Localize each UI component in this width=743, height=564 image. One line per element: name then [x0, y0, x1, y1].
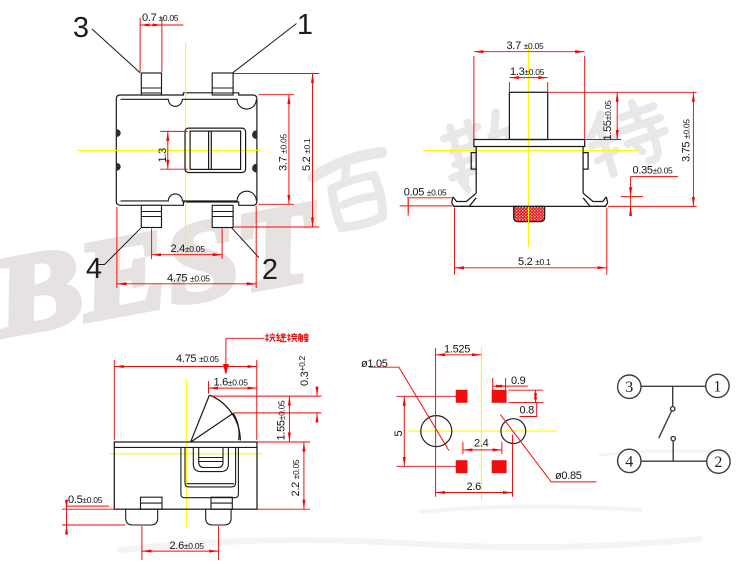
- svg-text:1.55±0.05: 1.55±0.05: [276, 400, 288, 441]
- svg-text:3.7 ±0.05: 3.7 ±0.05: [278, 134, 290, 171]
- svg-text:0.7 ±0.05: 0.7 ±0.05: [142, 12, 179, 24]
- svg-text:1.6±0.05: 1.6±0.05: [214, 377, 249, 389]
- svg-text:0.5±0.05: 0.5±0.05: [68, 494, 103, 506]
- svg-text:2: 2: [714, 454, 722, 471]
- svg-text:1.55±0.05: 1.55±0.05: [602, 100, 614, 141]
- svg-text:5.2 ±0.1: 5.2 ±0.1: [301, 138, 313, 171]
- svg-text:1.525: 1.525: [444, 344, 470, 356]
- svg-text:4: 4: [86, 253, 102, 285]
- svg-text:1.3±0.05: 1.3±0.05: [510, 66, 545, 78]
- svg-text:2.6: 2.6: [467, 481, 482, 493]
- svg-text:4: 4: [625, 453, 633, 470]
- svg-text:5.2 ±0.1: 5.2 ±0.1: [518, 256, 551, 268]
- svg-text:0.05 ±0.05: 0.05 ±0.05: [404, 186, 447, 198]
- svg-text:2.4: 2.4: [474, 438, 489, 450]
- svg-text:4.75 ±0.05: 4.75 ±0.05: [176, 353, 219, 365]
- svg-text:ø1.05: ø1.05: [361, 358, 388, 370]
- svg-text:2.4±0.05: 2.4±0.05: [171, 243, 206, 255]
- svg-text:0.35±0.05: 0.35±0.05: [633, 165, 674, 177]
- svg-text:2.2 ±0.05: 2.2 ±0.05: [290, 459, 302, 496]
- svg-text:4.75 ±0.05: 4.75 ±0.05: [167, 273, 210, 285]
- svg-text:3.7 ±0.05: 3.7 ±0.05: [507, 40, 544, 52]
- svg-text:0.8: 0.8: [520, 405, 535, 417]
- svg-text:3: 3: [625, 379, 633, 396]
- svg-text:2: 2: [262, 254, 278, 286]
- svg-text:3.75 ±0.05: 3.75 ±0.05: [681, 119, 693, 162]
- svg-text:1.3: 1.3: [157, 148, 169, 163]
- svg-text:ø0.85: ø0.85: [555, 470, 582, 482]
- svg-text:5: 5: [393, 431, 405, 437]
- svg-text:1: 1: [297, 9, 313, 41]
- svg-text:1: 1: [713, 378, 721, 395]
- svg-text:3: 3: [73, 12, 89, 44]
- svg-text:2.6±0.05: 2.6±0.05: [170, 540, 205, 552]
- svg-text:0.9: 0.9: [511, 375, 526, 387]
